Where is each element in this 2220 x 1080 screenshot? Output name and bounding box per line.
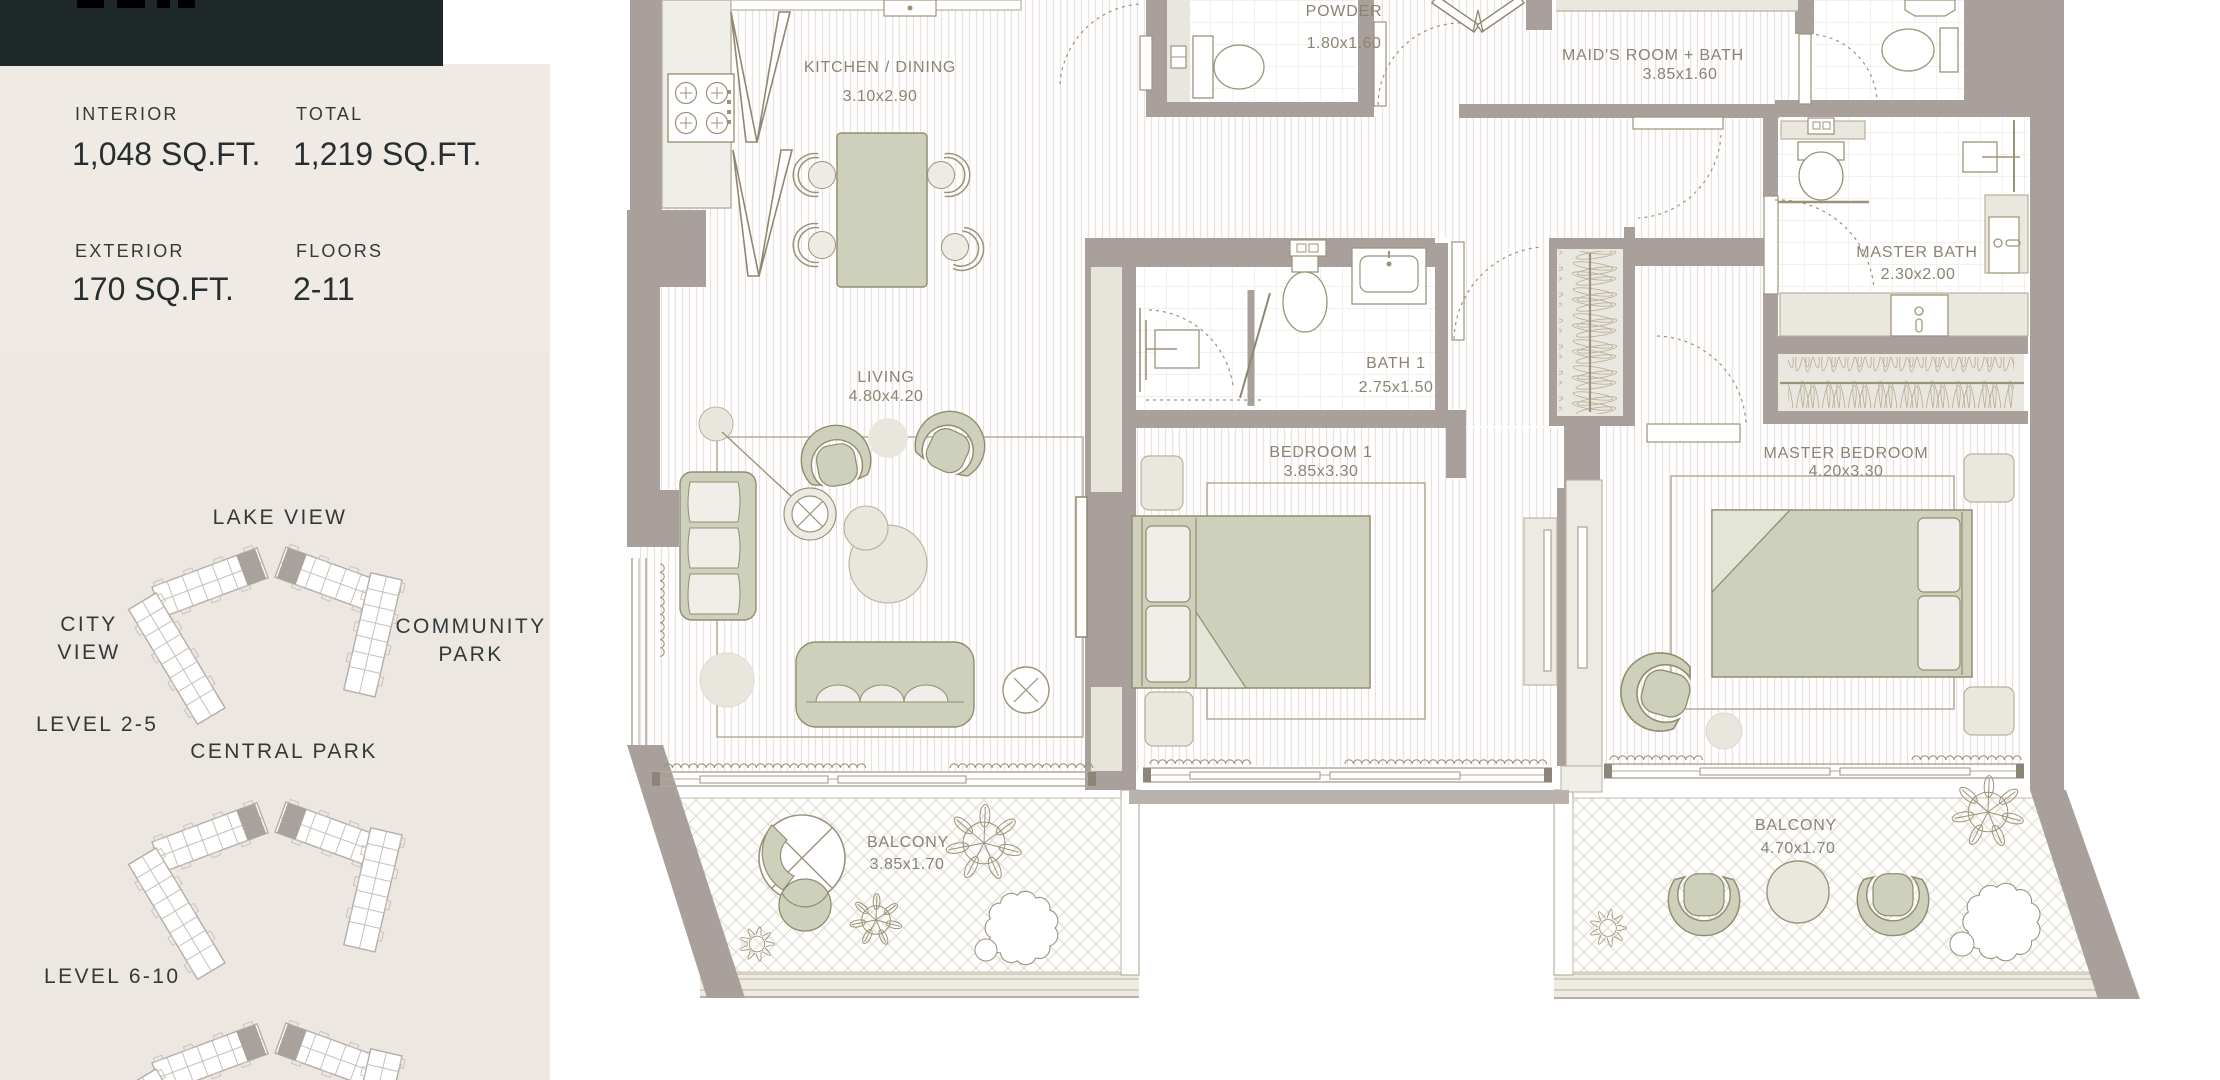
svg-text:LEVEL 2-5: LEVEL 2-5 bbox=[36, 713, 158, 736]
svg-text:170 SQ.FT.: 170 SQ.FT. bbox=[72, 271, 234, 307]
svg-text:BEDROOM 1: BEDROOM 1 bbox=[1269, 444, 1372, 461]
svg-text:INTERIOR: INTERIOR bbox=[75, 104, 179, 124]
svg-text:EXTERIOR: EXTERIOR bbox=[75, 241, 185, 261]
svg-text:PARK: PARK bbox=[438, 643, 503, 666]
svg-text:2.75x1.50: 2.75x1.50 bbox=[1359, 379, 1434, 396]
svg-text:KITCHEN / DINING: KITCHEN / DINING bbox=[804, 59, 956, 76]
svg-text:4.20x3.30: 4.20x3.30 bbox=[1809, 463, 1884, 480]
svg-text:2.30x2.00: 2.30x2.00 bbox=[1881, 266, 1956, 283]
svg-text:POWDER: POWDER bbox=[1306, 3, 1383, 20]
svg-text:COMMUNITY: COMMUNITY bbox=[395, 615, 546, 638]
svg-text:BALCONY: BALCONY bbox=[867, 834, 949, 851]
svg-text:3.85x1.70: 3.85x1.70 bbox=[870, 856, 945, 873]
svg-text:1.80x1.60: 1.80x1.60 bbox=[1307, 35, 1382, 52]
svg-text:MAID'S ROOM + BATH: MAID'S ROOM + BATH bbox=[1562, 47, 1744, 64]
svg-text:MASTER BEDROOM: MASTER BEDROOM bbox=[1764, 445, 1929, 462]
svg-text:1,219 SQ.FT.: 1,219 SQ.FT. bbox=[293, 136, 482, 172]
svg-text:FLOORS: FLOORS bbox=[296, 241, 383, 261]
svg-text:BATH 1: BATH 1 bbox=[1366, 355, 1426, 372]
svg-text:3.85x1.60: 3.85x1.60 bbox=[1643, 66, 1718, 83]
svg-text:CENTRAL PARK: CENTRAL PARK bbox=[190, 740, 378, 763]
svg-text:3.85x3.30: 3.85x3.30 bbox=[1284, 463, 1359, 480]
svg-text:VIEW: VIEW bbox=[57, 641, 120, 664]
svg-text:1,048 SQ.FT.: 1,048 SQ.FT. bbox=[72, 136, 261, 172]
svg-text:LEVEL 6-10: LEVEL 6-10 bbox=[44, 965, 180, 988]
svg-text:3.10x2.90: 3.10x2.90 bbox=[843, 88, 918, 105]
svg-text:MASTER BATH: MASTER BATH bbox=[1856, 244, 1977, 261]
svg-text:LAKE VIEW: LAKE VIEW bbox=[213, 506, 348, 529]
svg-text:2-11: 2-11 bbox=[293, 271, 355, 307]
svg-text:LIVING: LIVING bbox=[857, 369, 914, 386]
svg-text:4.70x1.70: 4.70x1.70 bbox=[1761, 840, 1836, 857]
svg-text:CITY: CITY bbox=[60, 613, 117, 636]
svg-text:TOTAL: TOTAL bbox=[296, 104, 363, 124]
svg-text:BALCONY: BALCONY bbox=[1755, 817, 1837, 834]
svg-text:4.80x4.20: 4.80x4.20 bbox=[849, 388, 924, 405]
